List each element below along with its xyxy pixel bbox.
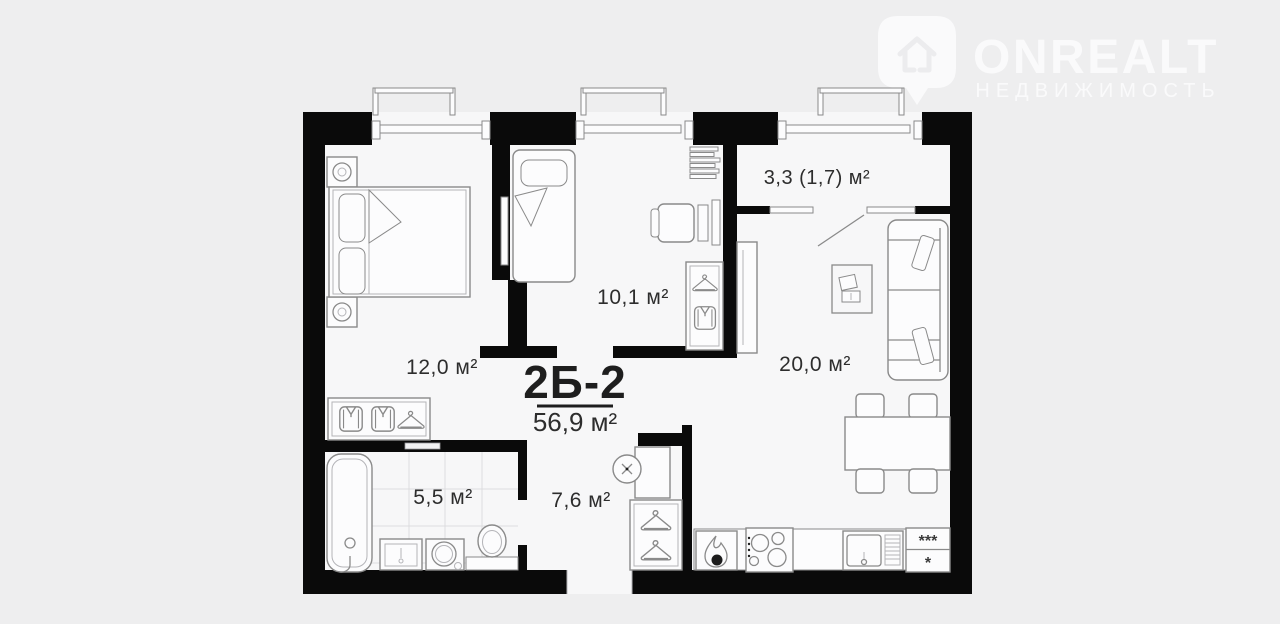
double-bed xyxy=(329,187,470,297)
chair xyxy=(909,394,937,418)
pillow xyxy=(339,194,365,242)
hall-closet xyxy=(630,500,682,570)
balcony-railing xyxy=(373,88,455,115)
room-label-bedroom: 12,0 м² xyxy=(406,356,478,379)
chair xyxy=(856,469,884,493)
pillow xyxy=(339,248,365,294)
wall-balcony-partition xyxy=(915,206,950,214)
washing-machine xyxy=(426,539,464,570)
single-bed xyxy=(513,150,575,282)
bathroom-sink xyxy=(380,539,422,570)
room-label-living: 20,0 м² xyxy=(779,353,851,376)
wall-left xyxy=(303,112,325,594)
boiler xyxy=(696,531,737,570)
wall-bottom xyxy=(632,570,972,594)
wardrobe xyxy=(686,262,723,350)
wall-bottom xyxy=(303,570,567,594)
watermark-brand: ONREALT xyxy=(973,31,1219,84)
desk-chair xyxy=(651,204,694,242)
floorplan-canvas: ONREALT НЕДВИЖИМОСТЬ xyxy=(0,0,1280,624)
freezer-stars: *** xyxy=(919,533,938,550)
wall xyxy=(490,112,576,145)
wall-stub xyxy=(638,433,682,446)
wall-kitchen-west xyxy=(682,425,692,570)
shirt-icon xyxy=(372,407,394,431)
wall-stub xyxy=(480,346,527,358)
kitchen-sink xyxy=(843,531,903,570)
freezer-star: * xyxy=(925,555,932,572)
shirt-icon xyxy=(340,407,362,431)
wardrobe xyxy=(328,398,430,440)
balcony-glazing xyxy=(770,207,813,213)
fridge: *** * xyxy=(906,528,950,572)
unit-title: 2Б-2 xyxy=(523,356,627,408)
wall-living-west xyxy=(723,145,737,358)
wall-balcony-partition xyxy=(737,206,770,214)
sofa xyxy=(888,220,948,380)
room-label-balcony: 3,3 (1,7) м² xyxy=(764,167,870,189)
laptop-screen xyxy=(839,274,857,290)
wall-bathroom-side xyxy=(518,545,527,570)
watermark: ONREALT НЕДВИЖИМОСТЬ xyxy=(878,16,1221,105)
fan-icon xyxy=(613,455,641,483)
nightstand xyxy=(327,157,357,187)
pillow xyxy=(521,160,567,186)
bathtub xyxy=(327,454,372,572)
wall xyxy=(693,112,778,145)
dining-table xyxy=(845,417,950,470)
floorplan-svg: ONREALT НЕДВИЖИМОСТЬ xyxy=(0,0,1280,624)
wall-right xyxy=(950,112,972,594)
shirt-icon xyxy=(695,307,716,330)
nightstand xyxy=(327,297,357,327)
wall-inset xyxy=(405,443,440,449)
unit-title-block: 2Б-2 56,9 м² xyxy=(523,356,627,437)
stove xyxy=(746,528,793,572)
wall-bathroom-side xyxy=(518,452,527,500)
bedroom-door-leaf xyxy=(501,197,508,265)
room-label-hallway: 7,6 м² xyxy=(551,489,610,512)
kitchen: *** * xyxy=(694,528,950,572)
chair xyxy=(856,394,884,418)
balcony-glazing xyxy=(867,207,915,213)
living-door-leaf xyxy=(737,242,757,353)
total-area: 56,9 м² xyxy=(533,407,618,437)
watermark-subtitle: НЕДВИЖИМОСТЬ xyxy=(975,80,1220,102)
chair xyxy=(909,469,937,493)
room-label-bathroom: 5,5 м² xyxy=(413,486,472,509)
room-label-kids-room: 10,1 м² xyxy=(597,286,669,309)
balcony-railing xyxy=(818,88,904,115)
balcony-railing xyxy=(581,88,666,115)
